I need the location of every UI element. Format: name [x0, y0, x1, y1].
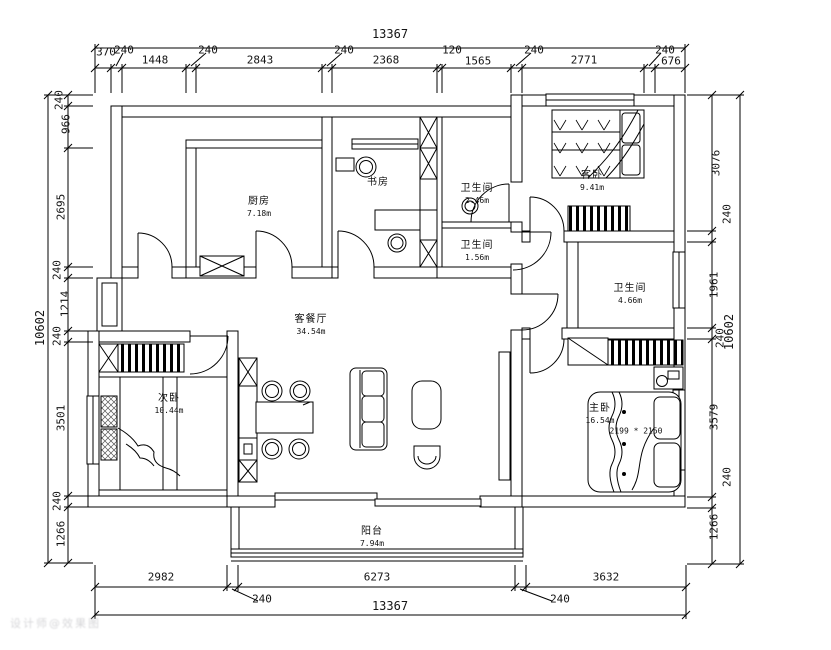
guest-wardrobe	[568, 206, 630, 231]
window-bath-east	[673, 252, 685, 308]
window-guest-north	[546, 94, 634, 106]
dim-label: 240	[54, 90, 65, 110]
window-study-top	[352, 139, 418, 149]
dim-label: 240	[715, 328, 726, 348]
dim-label: 1448	[142, 55, 169, 66]
room-label-master-bedroom: 主卧 16.54m	[586, 403, 615, 426]
door-study	[338, 231, 374, 267]
room-label-study: 书房	[367, 177, 389, 190]
dim-label: 966	[61, 114, 72, 134]
door-hallway	[522, 294, 558, 330]
study-wardrobe	[420, 117, 437, 267]
dim-label: 240	[52, 491, 63, 511]
dim-label: 240	[52, 326, 63, 346]
kitchen-duct-box	[200, 256, 244, 276]
master-wardrobe	[568, 338, 683, 365]
room-label-bath-top: 卫生间 2.46m	[461, 183, 494, 206]
room-label-balcony: 阳台 7.94m	[360, 526, 384, 549]
coffee-table	[412, 381, 441, 429]
door-master-bedroom	[530, 339, 564, 373]
dim-label: 1214	[60, 291, 71, 318]
dim-label: 240	[722, 467, 733, 487]
dim-label: 240	[114, 45, 134, 56]
dim-label: 2695	[56, 194, 67, 221]
master-bed-size-note: 2199 * 2150	[610, 427, 663, 436]
dim-label: 240	[722, 204, 733, 224]
dim-label: 13367	[372, 600, 408, 612]
floorplan-page: 13367 370 240 1448 240 2843 240 2368 120…	[0, 0, 831, 650]
door-kitchen	[256, 231, 292, 267]
room-label-kitchen: 厨房 7.18m	[247, 196, 271, 219]
dim-label: 6273	[364, 572, 391, 583]
dim-label: 2771	[571, 55, 598, 66]
room-label-bath-mid: 卫生间 1.56m	[461, 240, 494, 263]
dim-label: 10602	[34, 310, 46, 346]
sofa	[350, 368, 387, 450]
master-appliance	[654, 367, 683, 389]
dim-label: 3579	[709, 404, 720, 431]
dim-label: 3501	[56, 405, 67, 432]
dim-label: 1266	[56, 521, 67, 548]
tv-bench	[499, 352, 510, 480]
armchair	[414, 446, 440, 469]
dim-label: 120	[442, 45, 462, 56]
dim-label: 2843	[247, 55, 274, 66]
dim-label: 240	[550, 594, 570, 605]
dim-label: 240	[52, 260, 63, 280]
dim-label: 1565	[465, 56, 492, 67]
dim-label: 2368	[373, 55, 400, 66]
dim-label: 240	[524, 45, 544, 56]
dim-left-chain-line	[64, 91, 93, 567]
dim-label: 370	[96, 47, 116, 58]
room-label-bath-master: 卫生间 4.66m	[614, 283, 647, 306]
dining-table	[256, 381, 313, 459]
watermark: 设计师@效果图	[10, 615, 101, 631]
living-cabinet	[239, 358, 257, 482]
door-second-bedroom	[190, 336, 228, 374]
dim-label: 240	[334, 45, 354, 56]
dim-label: 240	[252, 594, 272, 605]
dim-label: 3076	[711, 150, 722, 177]
dim-label: 2982	[148, 572, 175, 583]
guest-bed	[552, 110, 644, 178]
dim-label: 240	[198, 45, 218, 56]
dim-label: 1266	[709, 514, 720, 541]
room-label-guest-bedroom: 客卧 9.41m	[580, 170, 604, 193]
dim-top-chain-line	[91, 64, 689, 93]
dim-label: 1961	[709, 272, 720, 299]
door-guest-bedroom	[530, 197, 564, 231]
dim-label: 676	[661, 56, 681, 67]
balcony-slider-door	[275, 493, 481, 506]
floorplan-drawing	[0, 0, 831, 650]
room-label-living-dining: 客餐厅 34.54m	[295, 314, 328, 337]
dim-label: 13367	[372, 28, 408, 40]
dim-label: 3632	[593, 572, 620, 583]
room-label-second-bedroom: 次卧 10.44m	[155, 393, 184, 416]
doors	[138, 184, 564, 374]
second-bedroom-wardrobe	[99, 344, 184, 372]
door-pantry	[138, 233, 172, 267]
window-bedroom-west	[87, 396, 99, 464]
balcony-rail	[231, 549, 523, 561]
